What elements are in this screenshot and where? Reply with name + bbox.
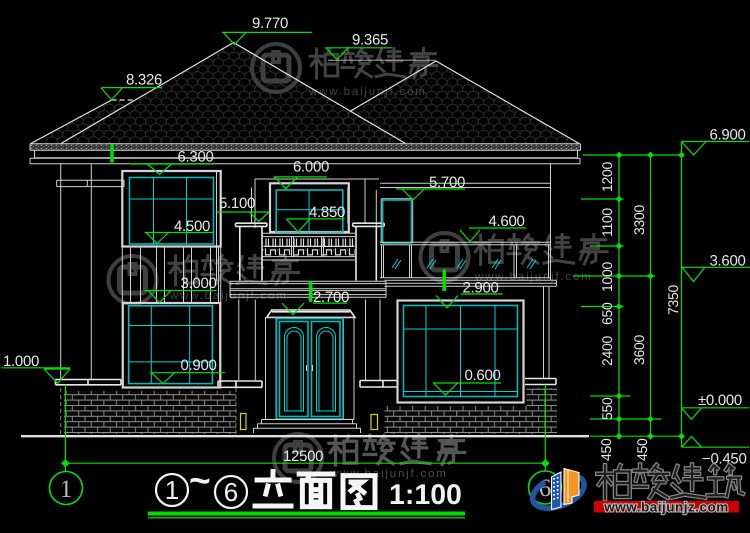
svg-text:450: 450 <box>598 438 614 461</box>
svg-text:3.600: 3.600 <box>710 253 746 270</box>
svg-text:www.baijunjz.com: www.baijunjz.com <box>603 500 729 515</box>
svg-text:2400: 2400 <box>599 336 615 366</box>
svg-text:1:100: 1:100 <box>389 479 462 511</box>
svg-text:2.900: 2.900 <box>463 280 499 297</box>
svg-text:9.365: 9.365 <box>352 32 388 49</box>
svg-text:4.500: 4.500 <box>174 218 210 235</box>
svg-text:1100: 1100 <box>599 208 615 237</box>
svg-text:6.900: 6.900 <box>710 127 746 144</box>
svg-text:550: 550 <box>599 397 615 420</box>
svg-text:12500: 12500 <box>283 448 323 465</box>
svg-text:9.770: 9.770 <box>252 15 288 32</box>
svg-text:5.100: 5.100 <box>219 195 255 212</box>
svg-text:−0.450: −0.450 <box>702 451 747 468</box>
svg-text:3.000: 3.000 <box>181 275 217 292</box>
svg-text:650: 650 <box>599 302 615 325</box>
svg-text:8.326: 8.326 <box>126 72 162 89</box>
svg-text:±0.000: ±0.000 <box>698 392 742 409</box>
svg-text:3600: 3600 <box>631 335 647 365</box>
svg-text:6.300: 6.300 <box>178 149 214 166</box>
svg-text:6.000: 6.000 <box>293 159 329 176</box>
svg-text:5.700: 5.700 <box>429 174 465 191</box>
svg-text:~: ~ <box>189 460 211 501</box>
svg-text:2.700: 2.700 <box>313 289 349 306</box>
svg-text:1.000: 1.000 <box>3 353 39 370</box>
svg-text:1: 1 <box>60 476 73 503</box>
svg-text:6: 6 <box>224 477 238 507</box>
svg-text:7350: 7350 <box>665 285 681 315</box>
svg-text:450: 450 <box>634 438 650 461</box>
svg-text:1000: 1000 <box>599 262 615 292</box>
svg-text:0.600: 0.600 <box>465 367 501 384</box>
svg-text:3300: 3300 <box>631 205 647 235</box>
svg-text:1200: 1200 <box>599 162 615 192</box>
svg-text:4.850: 4.850 <box>309 204 345 221</box>
svg-text:4.600: 4.600 <box>489 213 525 230</box>
svg-text:1: 1 <box>165 475 179 505</box>
svg-text:0.900: 0.900 <box>181 357 217 374</box>
